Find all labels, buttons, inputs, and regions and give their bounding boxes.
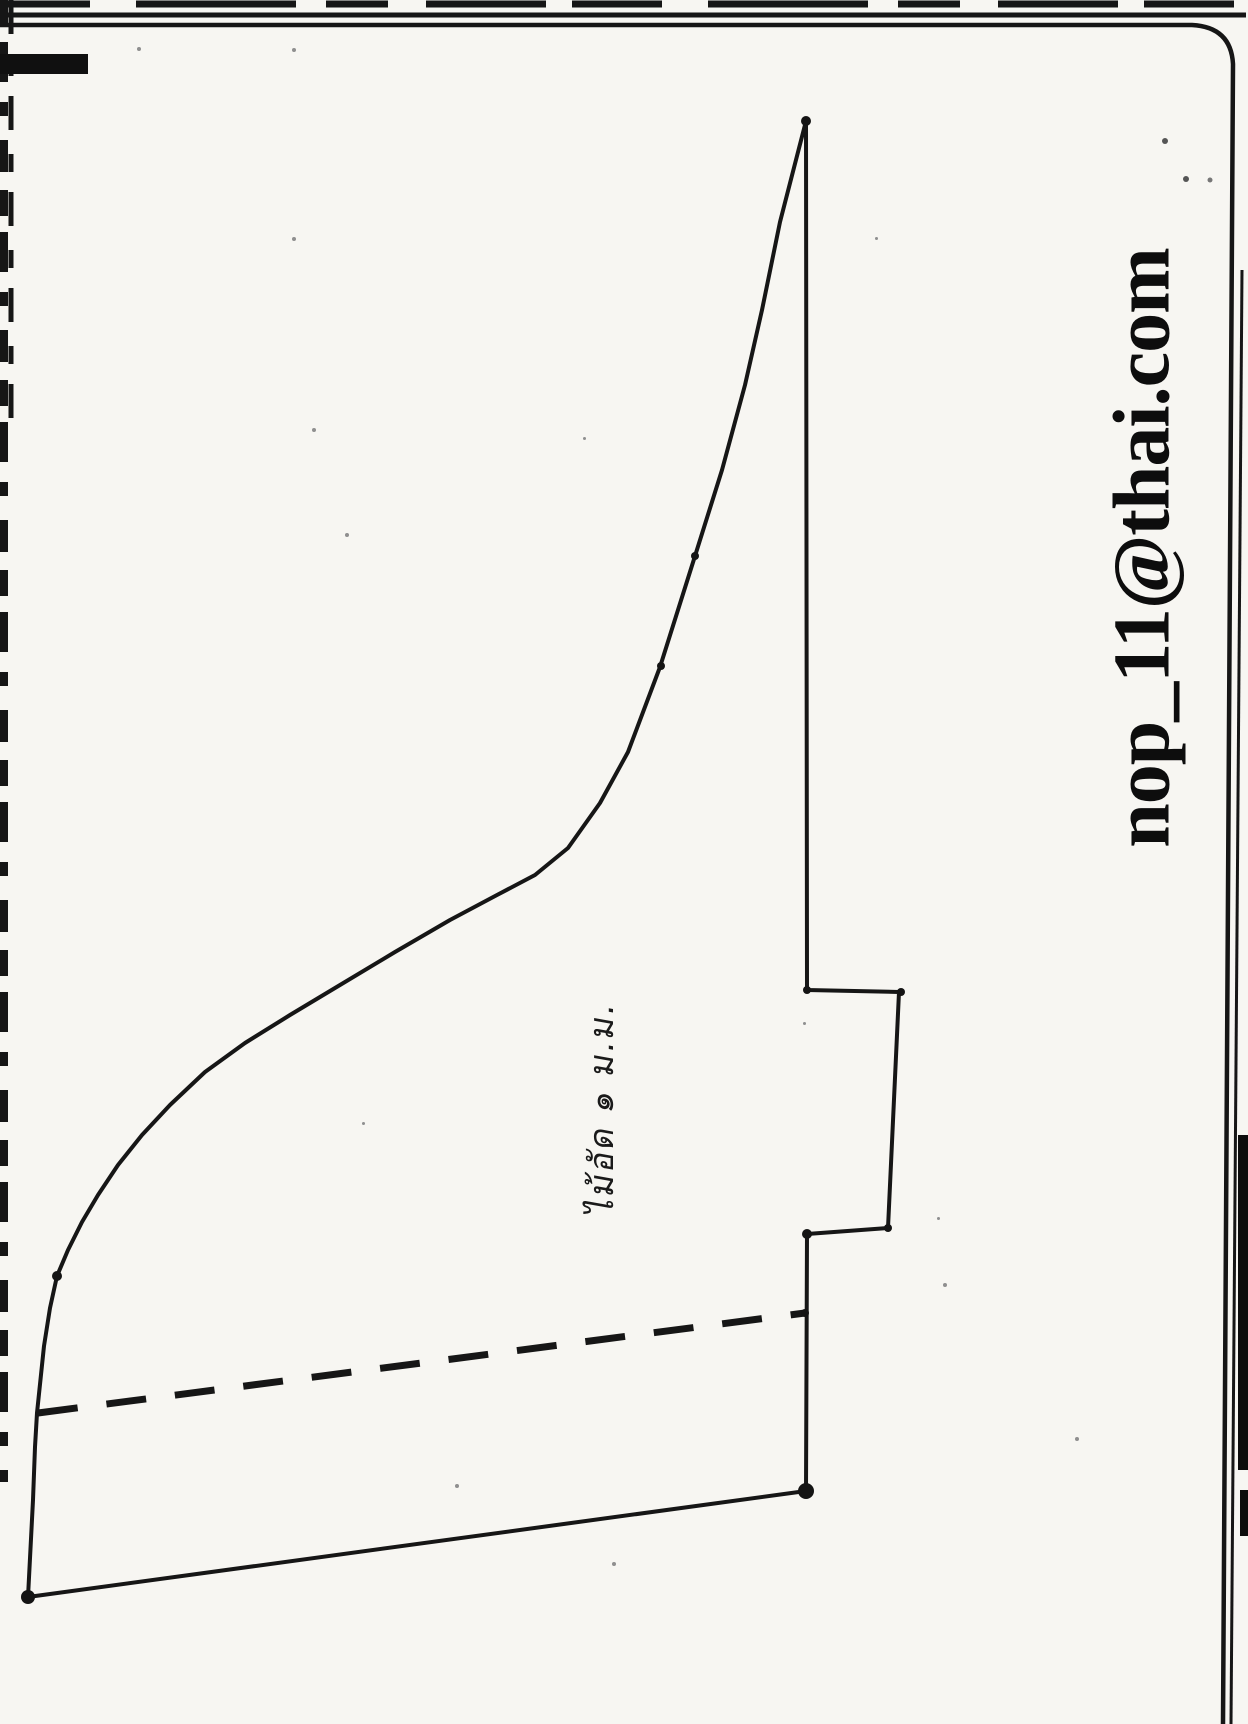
scan-speck (312, 428, 316, 432)
ink-dot (803, 986, 811, 994)
scan-speck (583, 437, 586, 440)
scan-speck (345, 533, 349, 537)
ink-dot (798, 1483, 814, 1499)
ink-dot (897, 988, 905, 996)
scan-speck (362, 1122, 365, 1125)
ink-dot (884, 1224, 892, 1232)
ink-dots (21, 116, 905, 1604)
ink-dot (52, 1271, 62, 1281)
scan-speck (455, 1484, 459, 1488)
scan-speck (1075, 1437, 1079, 1441)
scan-speck (1183, 176, 1189, 182)
ink-dot (801, 1309, 809, 1317)
scan-speck (1162, 138, 1168, 144)
ink-dot (657, 662, 665, 670)
scan-speck (292, 48, 296, 52)
scan-speck (875, 237, 878, 240)
scan-speck (612, 1562, 616, 1566)
ink-dot (21, 1590, 35, 1604)
scan-streak-right (1238, 1135, 1248, 1470)
scan-speck (943, 1283, 947, 1287)
ink-dot (802, 1229, 812, 1239)
scan-speck (292, 237, 296, 241)
scanned-page: nop_11@thai.com ไม้อัด ๑ ม.ม. (0, 0, 1248, 1724)
scan-speck (137, 47, 141, 51)
scan-speck (1208, 178, 1213, 183)
pattern-drawing-svg (0, 0, 1248, 1724)
scan-mark-top-left (0, 54, 88, 74)
scan-streak-right-lower (1240, 1490, 1248, 1536)
plywood-annotation: ไม้อัด ๑ ม.ม. (574, 996, 628, 1219)
ink-dot (691, 552, 699, 560)
scan-speck (803, 1022, 806, 1025)
fold-dashed-line (38, 1313, 805, 1413)
pattern-outline (28, 121, 899, 1597)
ink-dot (801, 116, 811, 126)
watermark-email-text: nop_11@thai.com (1098, 248, 1189, 848)
scan-speck (937, 1217, 940, 1220)
scan-border-top-inner-right (0, 25, 1233, 1724)
